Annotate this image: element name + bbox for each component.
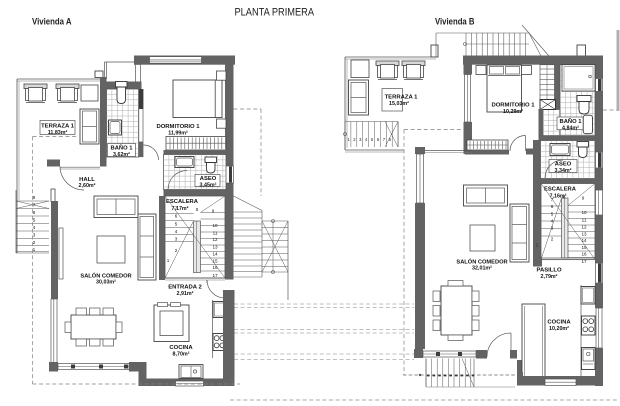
svg-text:11,83m²: 11,83m² xyxy=(48,130,68,136)
svg-text:15: 15 xyxy=(581,245,587,250)
svg-text:SALÓN COMEDOR: SALÓN COMEDOR xyxy=(456,258,507,266)
svg-text:1: 1 xyxy=(167,258,170,263)
svg-text:10,20m²: 10,20m² xyxy=(549,326,569,332)
svg-text:TERRAZA 1: TERRAZA 1 xyxy=(41,124,75,130)
svg-text:10: 10 xyxy=(581,210,587,215)
svg-text:15,03m²: 15,03m² xyxy=(389,101,409,107)
svg-text:16: 16 xyxy=(212,265,218,270)
svg-text:2,91m²: 2,91m² xyxy=(177,291,194,297)
svg-text:12: 12 xyxy=(581,225,587,230)
svg-text:COCINA: COCINA xyxy=(169,345,193,351)
svg-text:8: 8 xyxy=(33,195,36,201)
svg-text:11,99m²: 11,99m² xyxy=(168,131,188,137)
svg-text:3,62m²: 3,62m² xyxy=(113,152,130,158)
svg-text:6: 6 xyxy=(551,204,554,209)
svg-text:7: 7 xyxy=(33,203,36,209)
svg-text:ASEO: ASEO xyxy=(555,162,572,168)
svg-text:COCINA: COCINA xyxy=(547,320,571,326)
svg-text:12: 12 xyxy=(212,237,218,242)
svg-text:6: 6 xyxy=(33,210,36,216)
svg-text:PASILLO: PASILLO xyxy=(536,268,562,274)
svg-text:Vivienda A: Vivienda A xyxy=(32,16,72,27)
svg-text:DORMITORIO 1: DORMITORIO 1 xyxy=(491,103,535,109)
svg-text:7: 7 xyxy=(175,206,178,211)
svg-text:DORMITORIO 1: DORMITORIO 1 xyxy=(156,124,200,130)
svg-text:3,34m²: 3,34m² xyxy=(555,168,572,174)
svg-text:14: 14 xyxy=(212,252,218,257)
svg-text:ESCALERA: ESCALERA xyxy=(544,187,577,193)
svg-text:14: 14 xyxy=(581,238,587,243)
svg-text:1: 1 xyxy=(33,247,36,253)
svg-text:8,70m²: 8,70m² xyxy=(173,351,190,357)
svg-text:3: 3 xyxy=(175,237,178,242)
svg-text:11: 11 xyxy=(582,218,587,223)
svg-text:2,60m²: 2,60m² xyxy=(79,183,96,189)
svg-text:3: 3 xyxy=(551,226,554,231)
svg-text:9: 9 xyxy=(582,196,585,201)
svg-text:10,29m²: 10,29m² xyxy=(503,109,523,115)
svg-text:13: 13 xyxy=(581,232,587,237)
svg-text:17: 17 xyxy=(212,273,218,278)
svg-text:PLANTA PRIMERA: PLANTA PRIMERA xyxy=(235,7,315,19)
svg-text:4: 4 xyxy=(175,229,178,234)
svg-text:4: 4 xyxy=(33,225,36,231)
svg-text:BAÑO 1: BAÑO 1 xyxy=(111,145,134,152)
svg-text:SALÓN COMEDOR: SALÓN COMEDOR xyxy=(80,271,131,279)
svg-text:32,01m²: 32,01m² xyxy=(472,266,492,272)
svg-text:15: 15 xyxy=(212,259,218,264)
svg-text:8: 8 xyxy=(563,195,566,200)
svg-text:16: 16 xyxy=(581,252,587,257)
svg-text:10: 10 xyxy=(212,223,218,228)
svg-text:2: 2 xyxy=(33,240,36,246)
svg-text:2,79m²: 2,79m² xyxy=(541,274,558,280)
svg-text:13: 13 xyxy=(212,245,218,250)
svg-text:ASEO: ASEO xyxy=(200,176,217,182)
svg-text:Vivienda B: Vivienda B xyxy=(435,16,475,27)
svg-text:5: 5 xyxy=(551,212,554,217)
svg-text:3: 3 xyxy=(33,233,36,239)
svg-text:4: 4 xyxy=(551,219,554,224)
svg-text:ENTRADA 2: ENTRADA 2 xyxy=(168,285,202,291)
svg-text:4,84m²: 4,84m² xyxy=(562,125,579,131)
svg-text:2: 2 xyxy=(175,248,178,253)
svg-text:BAÑO 1: BAÑO 1 xyxy=(560,118,583,125)
svg-text:8: 8 xyxy=(196,207,199,212)
svg-text:TERRAZA 1: TERRAZA 1 xyxy=(385,95,419,101)
svg-text:HALL: HALL xyxy=(79,177,95,183)
svg-text:5: 5 xyxy=(33,218,36,224)
svg-text:9: 9 xyxy=(212,209,215,214)
svg-text:7: 7 xyxy=(551,197,554,202)
svg-text:2: 2 xyxy=(551,237,554,242)
svg-text:5: 5 xyxy=(175,222,178,227)
svg-text:1: 1 xyxy=(536,243,539,248)
svg-text:3,45m²: 3,45m² xyxy=(200,182,217,188)
svg-text:11: 11 xyxy=(213,231,218,236)
svg-text:6: 6 xyxy=(175,214,178,219)
svg-text:30,03m²: 30,03m² xyxy=(96,279,116,285)
